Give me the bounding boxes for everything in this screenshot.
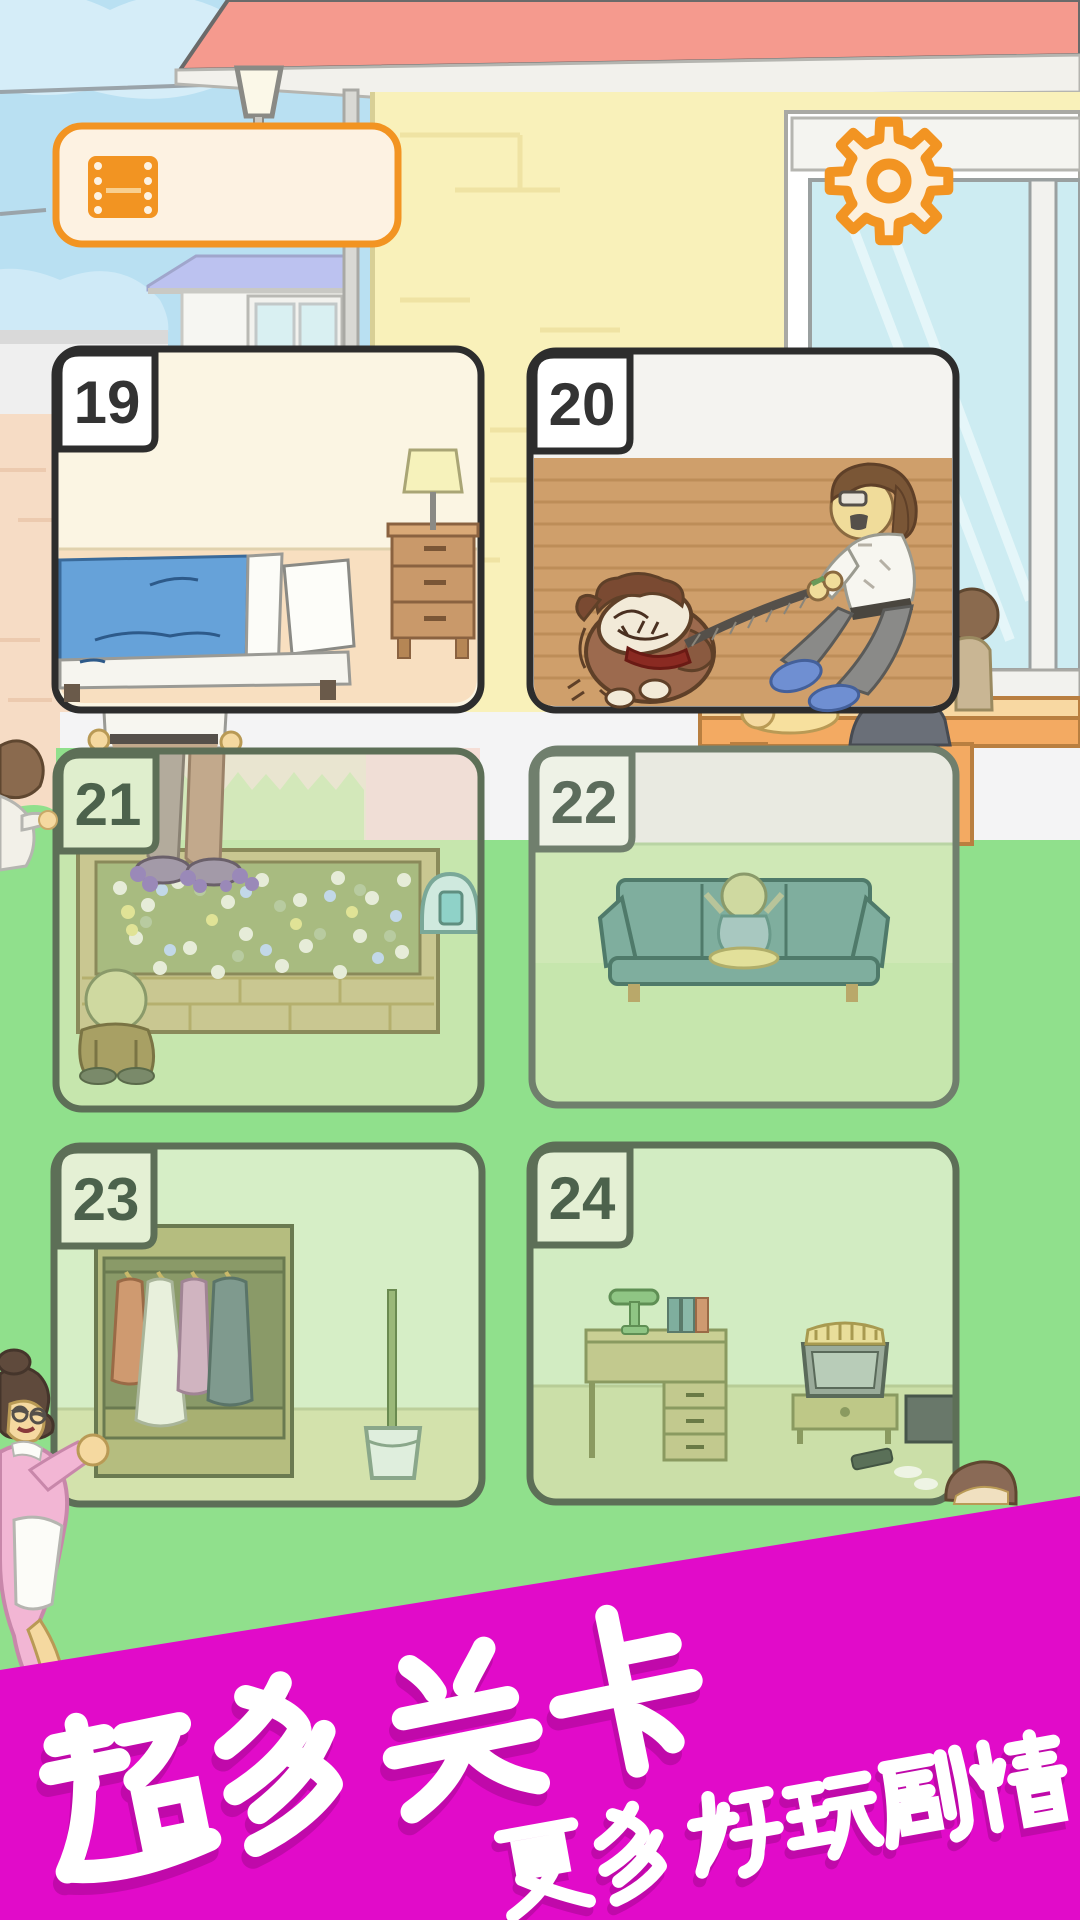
svg-text:19: 19 [74,369,141,436]
svg-text:21: 21 [75,771,142,838]
svg-text:20: 20 [549,371,616,438]
svg-text:23: 23 [73,1166,140,1233]
svg-text:22: 22 [551,769,618,836]
svg-text:24: 24 [549,1165,616,1232]
